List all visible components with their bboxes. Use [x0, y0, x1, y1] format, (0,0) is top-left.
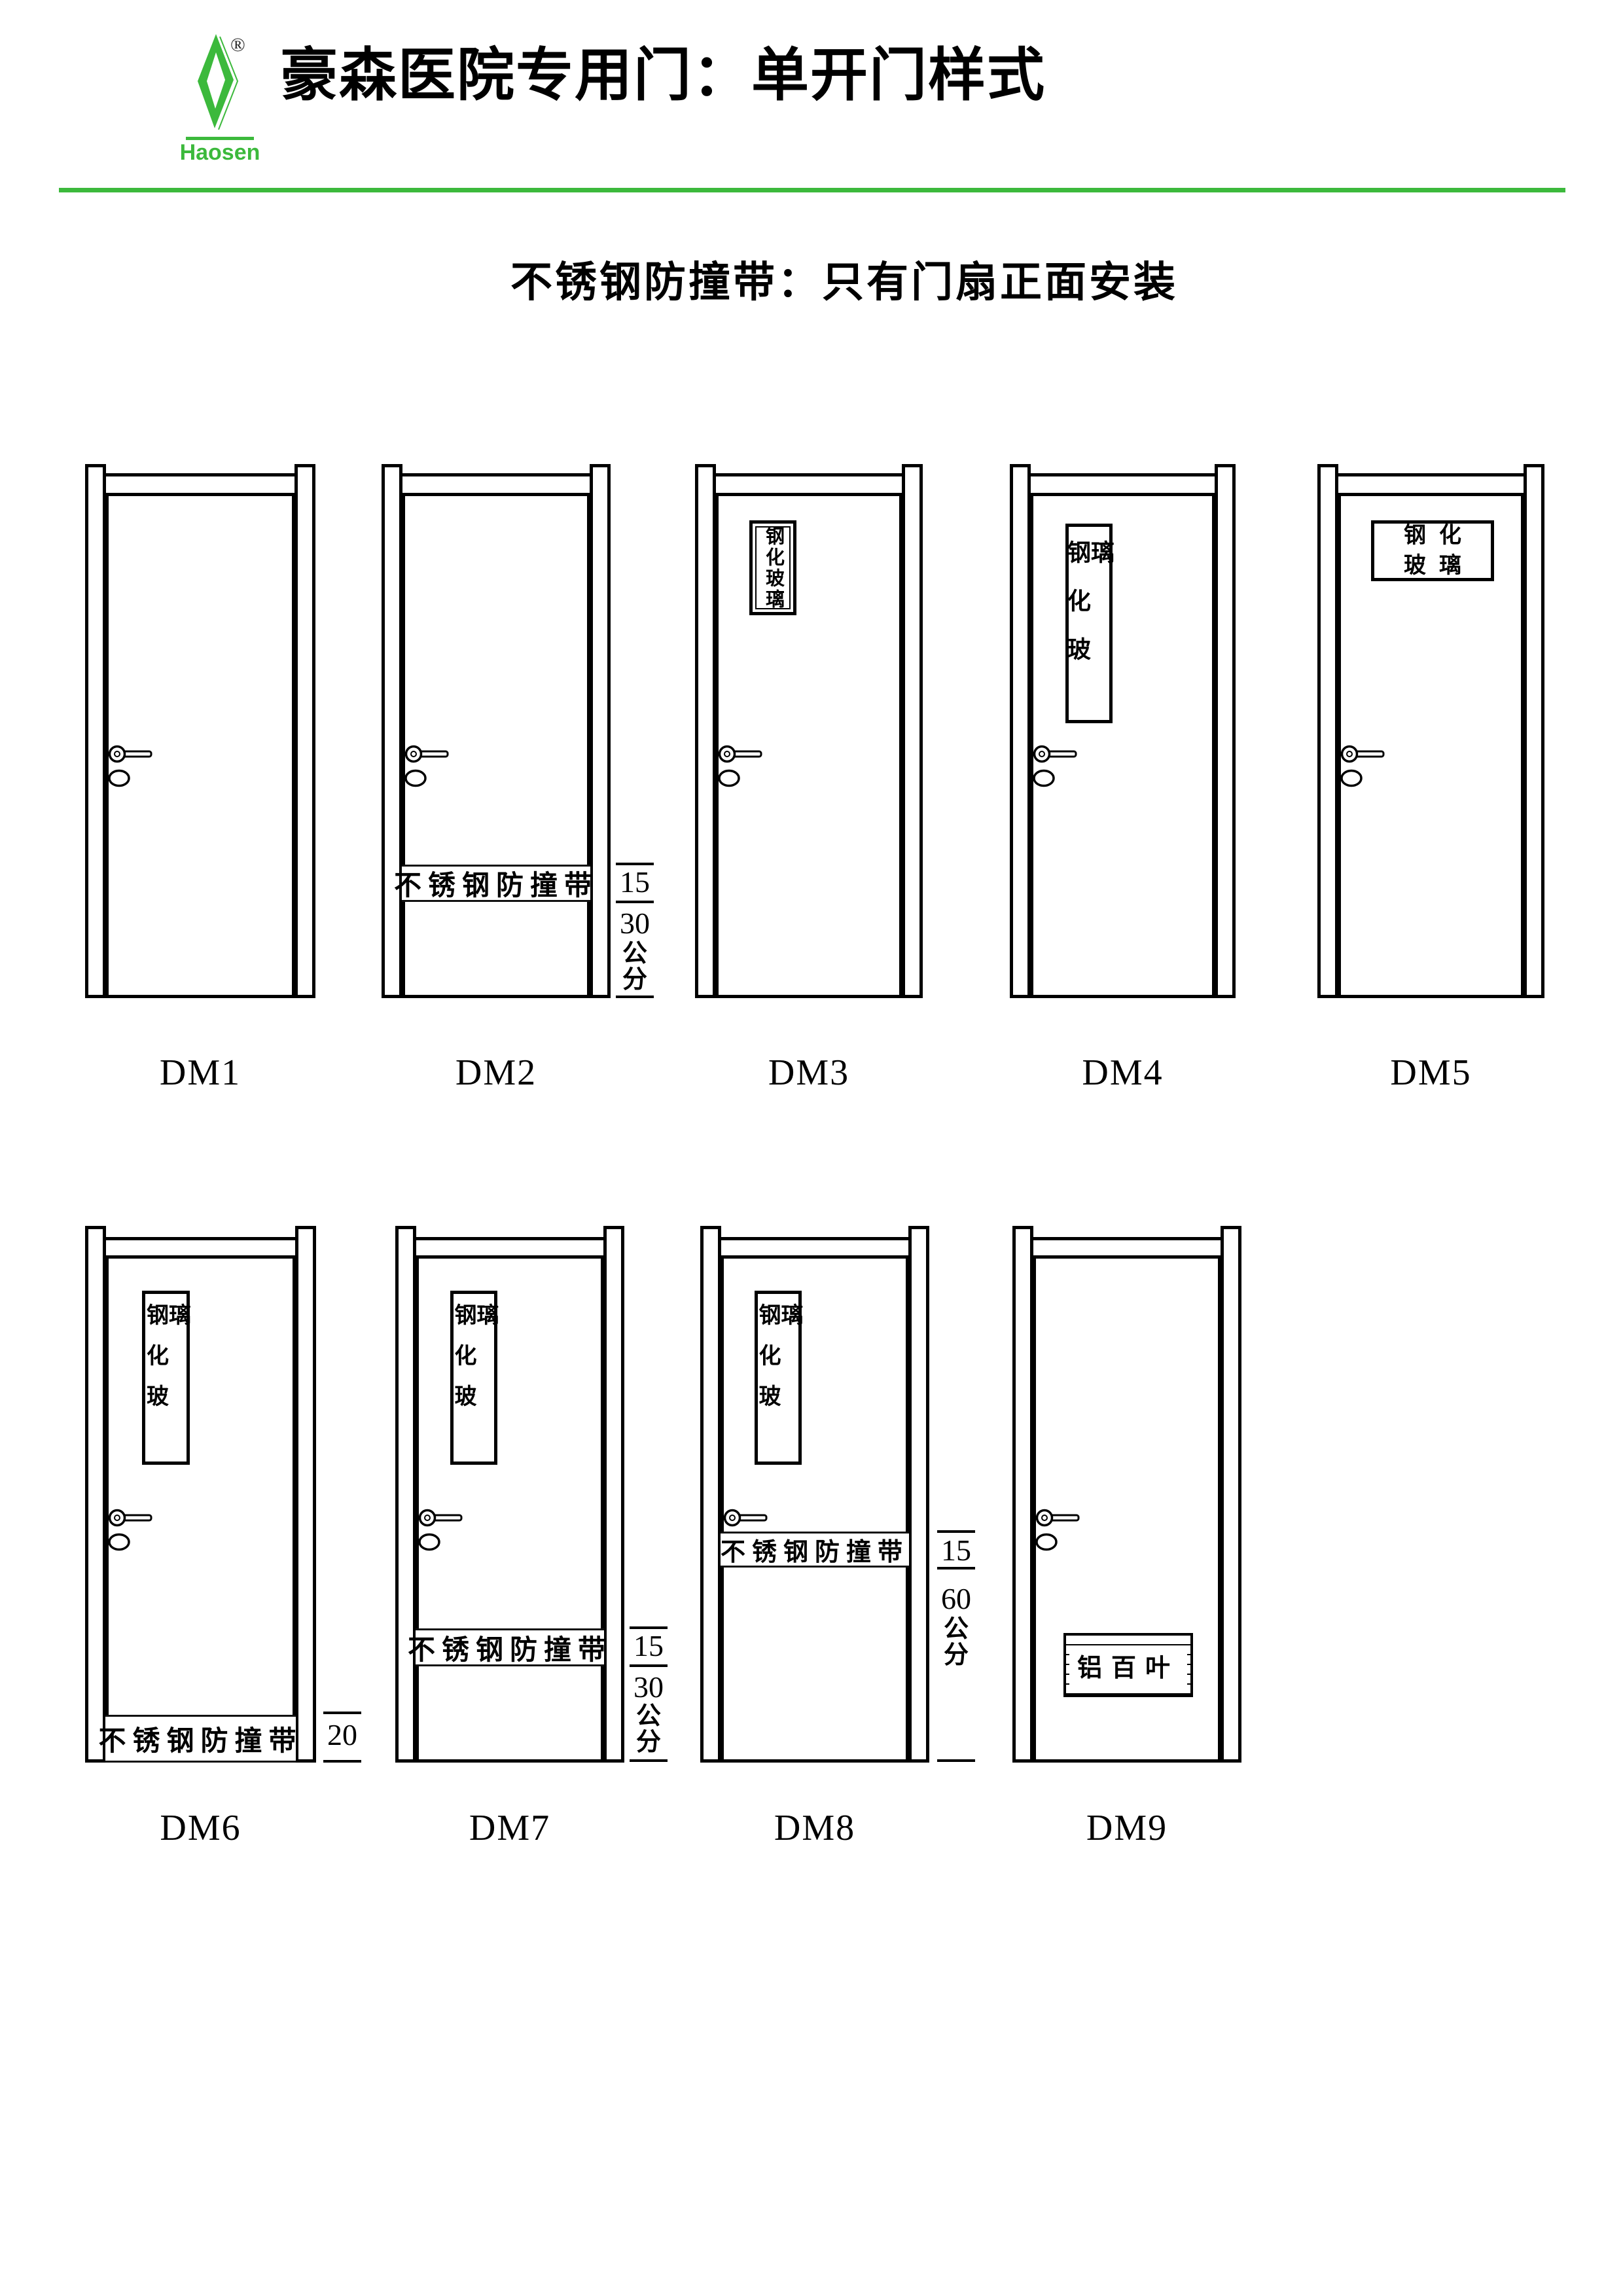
- door-label: DM1: [85, 1052, 315, 1094]
- right-jamb: [908, 1226, 929, 1763]
- dim-unit: 公: [630, 1704, 668, 1729]
- lintel-line: [1033, 1237, 1221, 1240]
- dim-tick: [616, 996, 654, 998]
- dimension-annotation-dm8: 15 60 公 分: [937, 1530, 975, 1761]
- dim-unit: 公: [937, 1617, 975, 1641]
- lintel-line: [715, 473, 902, 476]
- lintel-line: [402, 473, 590, 476]
- door-label: DM4: [1010, 1052, 1236, 1094]
- door-dm8: 钢化玻璃 不锈钢防撞带 DM8: [700, 1226, 929, 1763]
- dim-tick: [616, 901, 654, 903]
- glass-window-label: 钢化 玻璃: [1391, 521, 1474, 581]
- glass-window-label: 钢化玻璃: [144, 1294, 188, 1462]
- door-label: DM9: [1012, 1807, 1241, 1849]
- left-jamb: [85, 464, 106, 998]
- glass-window-label: 钢化玻璃: [764, 526, 783, 610]
- door-dm1: DM1: [85, 464, 315, 998]
- right-jamb: [1215, 464, 1236, 998]
- anti-collision-strip-label: 不锈钢防撞带: [408, 1628, 612, 1668]
- dimension-annotation-dm2: 15 30 公 分: [616, 863, 654, 1000]
- glass-window-label: 钢化玻璃: [1065, 527, 1113, 720]
- dim-value: 30: [616, 908, 654, 939]
- door-dm6: 钢化玻璃 不锈钢防撞带 DM6: [85, 1226, 316, 1763]
- door-handle-icon: [1035, 1508, 1090, 1555]
- louver-panel: 铝百叶: [1063, 1633, 1193, 1697]
- door-handle-icon: [418, 1508, 473, 1555]
- dim-value: 20: [323, 1720, 361, 1750]
- dim-tick: [937, 1530, 975, 1533]
- glass-window: 钢化玻璃: [1065, 524, 1113, 723]
- door-dm5: 钢化 玻璃 DM5: [1317, 464, 1544, 998]
- glass-window: 钢化玻璃: [749, 520, 796, 615]
- dim-tick: [630, 1664, 668, 1667]
- door-label: DM8: [700, 1807, 929, 1849]
- left-jamb: [1012, 1226, 1033, 1763]
- dim-unit: 分: [630, 1730, 668, 1755]
- right-jamb: [295, 1226, 316, 1763]
- right-jamb: [902, 464, 923, 998]
- right-jamb: [294, 464, 315, 998]
- door-label: DM3: [695, 1052, 923, 1094]
- door-label: DM5: [1317, 1052, 1544, 1094]
- door-dm2: 不锈钢防撞带 DM2: [382, 464, 611, 998]
- dim-unit: 公: [616, 941, 654, 966]
- door-label: DM7: [395, 1807, 624, 1849]
- dimension-annotation-dm6: 20: [323, 1712, 361, 1761]
- dim-value: 30: [630, 1672, 668, 1702]
- dim-tick: [323, 1712, 361, 1714]
- door-handle-icon: [1032, 744, 1087, 791]
- left-jamb: [1317, 464, 1338, 998]
- door-handle-icon: [1340, 744, 1395, 791]
- catalog-page: { "page": { "background": "#ffffff", "ac…: [0, 0, 1623, 2296]
- dim-value: 15: [616, 867, 654, 897]
- dim-value: 60: [937, 1584, 975, 1614]
- glass-window: 钢化 玻璃: [1371, 520, 1494, 581]
- anti-collision-strip: 不锈钢防撞带: [721, 1532, 909, 1568]
- brand-name: Haosen: [178, 140, 262, 166]
- dim-unit: 分: [937, 1643, 975, 1668]
- anti-collision-strip-label: 不锈钢防撞带: [394, 863, 598, 903]
- left-jamb: [395, 1226, 416, 1763]
- anti-collision-strip: 不锈钢防撞带: [416, 1628, 604, 1666]
- anti-collision-strip: 不锈钢防撞带: [402, 865, 590, 902]
- lintel-line: [1030, 473, 1215, 476]
- right-jamb: [603, 1226, 624, 1763]
- dim-value: 15: [937, 1535, 975, 1566]
- lintel-line: [721, 1237, 909, 1240]
- anti-collision-strip: 不锈钢防撞带: [105, 1715, 296, 1763]
- door-handle-icon: [717, 744, 772, 791]
- header-divider: [59, 188, 1565, 192]
- door-handle-icon: [107, 744, 162, 791]
- dimension-annotation-dm7: 15 30 公 分: [630, 1626, 668, 1761]
- left-jamb: [695, 464, 716, 998]
- door-label: DM6: [85, 1807, 316, 1849]
- anti-collision-strip-label: 不锈钢防撞带: [99, 1719, 303, 1759]
- anti-collision-strip-label: 不锈钢防撞带: [721, 1532, 909, 1568]
- left-jamb: [382, 464, 402, 998]
- dim-tick: [937, 1759, 975, 1762]
- right-jamb: [1524, 464, 1544, 998]
- dim-value: 15: [630, 1631, 668, 1661]
- dim-tick: [937, 1567, 975, 1570]
- door-handle-icon: [107, 1508, 162, 1555]
- left-jamb: [85, 1226, 106, 1763]
- left-jamb: [700, 1226, 721, 1763]
- door-dm7: 钢化玻璃 不锈钢防撞带 DM7: [395, 1226, 624, 1763]
- glass-window: 钢化玻璃: [450, 1291, 497, 1465]
- lintel-line: [416, 1237, 604, 1240]
- door-label: DM2: [382, 1052, 611, 1094]
- glass-window: 钢化玻璃: [142, 1291, 190, 1465]
- louver-label: 铝百叶: [1069, 1646, 1187, 1685]
- door-dm3: 钢化玻璃 DM3: [695, 464, 923, 998]
- page-title: 豪森医院专用门：单开门样式: [280, 29, 1046, 112]
- page-subtitle: 不锈钢防撞带：只有门扇正面安装: [510, 249, 1178, 309]
- lintel-line: [105, 473, 295, 476]
- right-jamb: [590, 464, 611, 998]
- glass-window: 钢化玻璃: [755, 1291, 802, 1465]
- dim-tick: [323, 1760, 361, 1763]
- lintel-line: [105, 1237, 296, 1240]
- right-jamb: [1221, 1226, 1241, 1763]
- door-handle-icon: [404, 744, 459, 791]
- dim-tick: [630, 1759, 668, 1762]
- dim-unit: 分: [616, 967, 654, 992]
- registered-mark: ®: [230, 34, 245, 56]
- lintel-line: [1338, 473, 1524, 476]
- door-dm4: 钢化玻璃 DM4: [1010, 464, 1236, 998]
- glass-window-label: 钢化玻璃: [452, 1294, 496, 1462]
- left-jamb: [1010, 464, 1031, 998]
- door-dm9: 铝百叶 DM9: [1012, 1226, 1241, 1763]
- glass-window-label: 钢化玻璃: [756, 1294, 800, 1462]
